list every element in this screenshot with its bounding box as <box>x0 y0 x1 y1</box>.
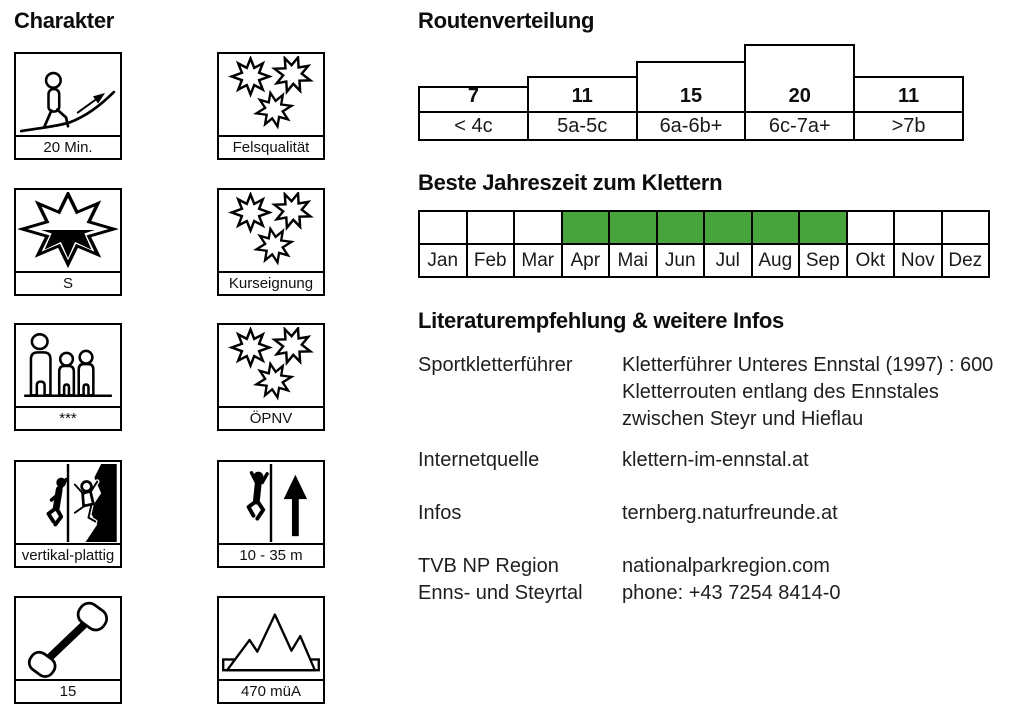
literature-value-line: Kletterrouten entlang des Ennstales <box>622 379 993 406</box>
mountain-altitude-icon <box>219 598 323 681</box>
wall-style-climbers-icon <box>16 462 120 545</box>
literature-value: Kletterführer Unteres Ennstal (1997) : 6… <box>622 352 993 433</box>
month-label-cell: Mai <box>608 243 658 278</box>
route-grade-cell: 6a-6b+ <box>636 111 747 141</box>
literature-value-line: klettern-im-ennstal.at <box>622 447 809 474</box>
month-label-cell: Mar <box>513 243 563 278</box>
icon-box-orientation: S <box>14 188 122 296</box>
route-grade-cell: 6c-7a+ <box>744 111 855 141</box>
icon-label-quickdraw-count: 15 <box>16 681 120 702</box>
rock-quality-stars-icon <box>219 54 323 137</box>
section-title-charakter: Charakter <box>14 8 114 34</box>
route-count: 15 <box>680 85 702 108</box>
month-season-cell <box>608 210 658 245</box>
icon-label-family-rating: *** <box>16 408 120 429</box>
family-figures-icon <box>16 325 120 408</box>
route-count-bar: 15 <box>636 61 747 113</box>
route-count-bar: 7 <box>418 86 529 113</box>
month-label-cell: Nov <box>893 243 943 278</box>
month-label-cell: Apr <box>561 243 611 278</box>
icon-label-wall-style: vertikal-plattig <box>16 545 120 566</box>
route-grade-cell: < 4c <box>418 111 529 141</box>
literature-label: Sportkletterführer <box>418 352 573 379</box>
icon-box-altitude: 470 müA <box>217 596 325 704</box>
icon-label-rock-quality: Felsqualität <box>219 137 323 158</box>
icon-label-course-suitability: Kurseignung <box>219 273 323 294</box>
literature-value: nationalparkregion.com phone: +43 7254 8… <box>622 553 841 607</box>
month-label-cell: Jan <box>418 243 468 278</box>
literature-value-line: ternberg.naturfreunde.at <box>622 500 838 527</box>
section-title-literature: Literaturempfehlung & weitere Infos <box>418 308 784 334</box>
route-count: 7 <box>468 85 479 108</box>
month-label-cell: Aug <box>751 243 801 278</box>
route-count: 20 <box>789 85 811 108</box>
route-count-bar: 20 <box>744 44 855 113</box>
route-length-climber-arrow-icon <box>219 462 323 545</box>
route-grade-cell: >7b <box>853 111 964 141</box>
literature-value: ternberg.naturfreunde.at <box>622 500 838 527</box>
route-count: 11 <box>898 85 919 108</box>
route-count: 11 <box>572 85 593 108</box>
month-season-cell <box>656 210 706 245</box>
section-title-best-season: Beste Jahreszeit zum Klettern <box>418 170 722 196</box>
route-grade-cell: 5a-5c <box>527 111 638 141</box>
icon-box-route-length: 10 - 35 m <box>217 460 325 568</box>
month-label-cell: Okt <box>846 243 896 278</box>
month-season-cell <box>846 210 896 245</box>
month-season-cell <box>703 210 753 245</box>
icon-box-wall-style: vertikal-plattig <box>14 460 122 568</box>
quickdraw-icon <box>16 598 120 681</box>
course-suitability-stars-icon <box>219 190 323 273</box>
month-label-cell: Dez <box>941 243 991 278</box>
icon-box-family-rating: *** <box>14 323 122 431</box>
icon-box-public-transport: ÖPNV <box>217 323 325 431</box>
literature-label-line: Sportkletterführer <box>418 352 573 379</box>
literature-label: Internetquelle <box>418 447 539 474</box>
month-season-cell <box>893 210 943 245</box>
icon-box-approach-time: 20 Min. <box>14 52 122 160</box>
literature-value-line: nationalparkregion.com <box>622 553 841 580</box>
month-season-cell <box>418 210 468 245</box>
literature-label-line: Infos <box>418 500 461 527</box>
literature-value-line: zwischen Steyr und Hieflau <box>622 406 993 433</box>
month-season-cell <box>513 210 563 245</box>
icon-box-quickdraw-count: 15 <box>14 596 122 704</box>
icon-label-approach-time: 20 Min. <box>16 137 120 158</box>
literature-label: TVB NP Region Enns- und Steyrtal <box>418 553 583 607</box>
month-season-cell <box>561 210 611 245</box>
month-season-cell <box>798 210 848 245</box>
literature-value-line: phone: +43 7254 8414-0 <box>622 580 841 607</box>
month-season-cell <box>466 210 516 245</box>
month-label-cell: Jun <box>656 243 706 278</box>
month-label-cell: Sep <box>798 243 848 278</box>
month-season-cell <box>941 210 991 245</box>
icon-box-rock-quality: Felsqualität <box>217 52 325 160</box>
route-count-bar: 11 <box>527 76 638 113</box>
month-label-cell: Jul <box>703 243 753 278</box>
sun-orientation-icon <box>16 190 120 273</box>
month-season-cell <box>751 210 801 245</box>
literature-value-line: Kletterführer Unteres Ennstal (1997) : 6… <box>622 352 993 379</box>
literature-label-line: Enns- und Steyrtal <box>418 580 583 607</box>
literature-label-line: Internetquelle <box>418 447 539 474</box>
public-transport-stars-icon <box>219 325 323 408</box>
literature-value: klettern-im-ennstal.at <box>622 447 809 474</box>
climbing-info-page: Charakter 20 Min. S <box>0 0 1024 725</box>
literature-label: Infos <box>418 500 461 527</box>
month-label-cell: Feb <box>466 243 516 278</box>
icon-label-orientation: S <box>16 273 120 294</box>
approach-hiker-icon <box>16 54 120 137</box>
route-count-bar: 11 <box>853 76 964 113</box>
literature-label-line: TVB NP Region <box>418 553 583 580</box>
icon-label-route-length: 10 - 35 m <box>219 545 323 566</box>
icon-label-altitude: 470 müA <box>219 681 323 702</box>
icon-box-course-suitability: Kurseignung <box>217 188 325 296</box>
icon-label-public-transport: ÖPNV <box>219 408 323 429</box>
section-title-route-distribution: Routenverteilung <box>418 8 594 34</box>
